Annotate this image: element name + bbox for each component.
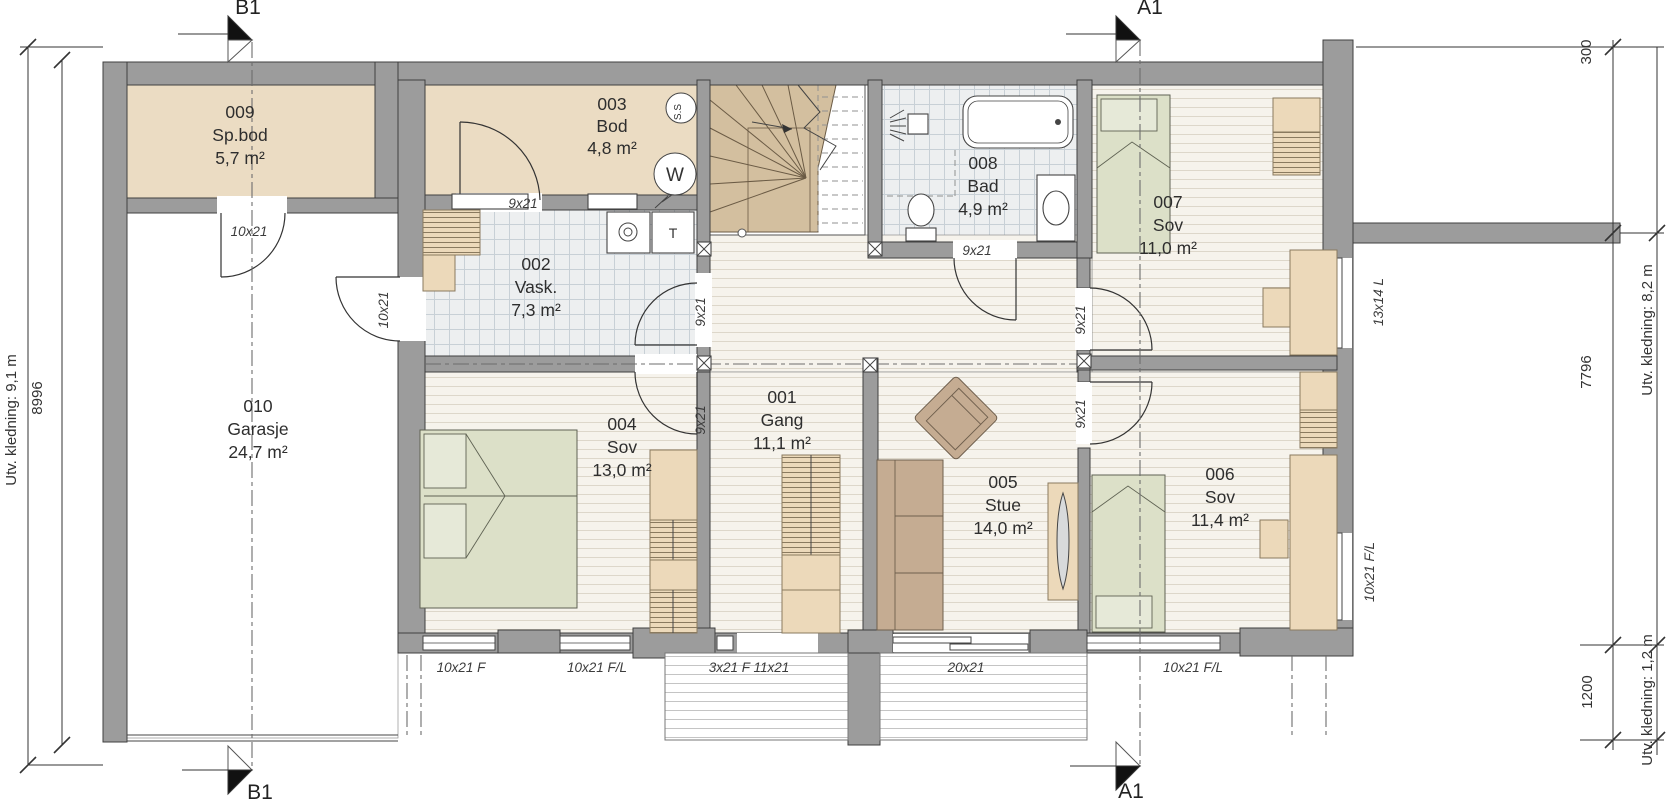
shower-mixer xyxy=(908,114,928,134)
dim-left-outer: Utv. kledning: 9,1 m xyxy=(3,354,20,485)
label-window-sov004-right: 10x21 F/L xyxy=(567,660,627,675)
toilet-tank xyxy=(906,228,936,241)
chair-sov-007 xyxy=(1263,288,1290,327)
staircase xyxy=(710,85,865,237)
room-name-007: Sov xyxy=(1153,215,1183,235)
shelf-sov-007 xyxy=(1273,98,1320,132)
chair-sov-006 xyxy=(1260,520,1288,558)
desk-sov-007 xyxy=(1290,250,1337,355)
wardrobe-sov-004 xyxy=(650,450,697,520)
room-name-010: Garasje xyxy=(227,419,288,439)
section-marker-a1-top: A1 xyxy=(1066,0,1163,62)
sofa-stue xyxy=(877,460,943,630)
label-window-sov006-bottom: 10x21 F/L xyxy=(1163,660,1223,675)
room-area-002: 7,3 m² xyxy=(511,300,561,320)
wall-central-lower xyxy=(697,345,710,633)
room-number-004: 004 xyxy=(607,414,636,434)
room-area-009: 5,7 m² xyxy=(215,148,265,168)
wall-007-006 xyxy=(1090,356,1337,370)
wall-stair-bad xyxy=(868,80,882,256)
label-door-garage-side: 10x21 xyxy=(376,292,391,329)
wall-006-left-b xyxy=(1078,448,1090,633)
label-door-sov-007: 9x21 xyxy=(1073,305,1088,334)
room-name-008: Bad xyxy=(967,176,998,196)
section-label-a1-bottom: A1 xyxy=(1118,780,1144,800)
label-door-sp-bod: 10x21 xyxy=(231,224,268,239)
room-number-002: 002 xyxy=(521,254,550,274)
label-window-sov004-left: 10x21 F xyxy=(437,660,487,675)
bathroom-sink xyxy=(1043,191,1069,225)
label-dryer: T xyxy=(669,225,678,241)
porch-pillar xyxy=(848,653,880,745)
dim-right-outer-bottom: Utv. kledning: 1,2 m xyxy=(1639,634,1656,765)
entrance-sidelight xyxy=(717,636,733,650)
shelf-sov-006 xyxy=(1300,372,1337,410)
wall-spbod-right xyxy=(375,62,398,213)
sliding-door-panel-2 xyxy=(950,644,1028,650)
room-area-008: 4,9 m² xyxy=(958,199,1008,219)
dim-right-outer: Utv. kledning: 8,2 m xyxy=(1639,264,1656,395)
label-water-heater: W xyxy=(666,165,684,186)
room-area-001: 11,1 m² xyxy=(753,433,811,453)
label-door-sov-004: 9x21 xyxy=(693,405,708,434)
wall-gang-stue xyxy=(863,358,878,633)
section-label-b1-top: B1 xyxy=(235,0,261,19)
floor-garasje xyxy=(127,213,398,738)
dim-right-bottom: 1200 xyxy=(1579,675,1596,708)
wall-006-left-a xyxy=(1078,370,1090,382)
room-area-010: 24,7 m² xyxy=(228,442,287,462)
dim-left-inner: 8996 xyxy=(29,381,46,414)
room-area-007: 11,0 m² xyxy=(1139,238,1197,258)
room-area-006: 11,4 m² xyxy=(1191,510,1249,530)
room-number-010: 010 xyxy=(243,396,272,416)
dimension-lines-right: 300 7796 Utv. kledning: 8,2 m 1200 Utv. … xyxy=(1356,39,1665,766)
room-area-004: 13,0 m² xyxy=(592,460,651,480)
label-sliding-door: 20x21 xyxy=(947,660,985,675)
label-window-sov006-right: 10x21 F/L xyxy=(1362,542,1377,602)
room-number-003: 003 xyxy=(597,94,626,114)
desk-sov-006 xyxy=(1290,455,1337,630)
room-number-009: 009 xyxy=(225,102,254,122)
dimension-lines-left: Utv. kledning: 9,1 m 8996 xyxy=(3,39,103,773)
room-name-001: Gang xyxy=(761,410,804,430)
section-label-a1-top: A1 xyxy=(1137,0,1163,19)
counter-bod-2 xyxy=(588,194,637,209)
label-door-vask: 9x21 xyxy=(693,297,708,326)
label-ss-unit: S.S xyxy=(673,104,684,120)
room-name-002: Vask. xyxy=(515,277,557,297)
label-window-sov-007: 13x14 L xyxy=(1371,278,1386,326)
label-door-sov-006: 9x21 xyxy=(1073,399,1088,428)
room-number-005: 005 xyxy=(988,472,1017,492)
sliding-door-panel-1 xyxy=(893,637,971,643)
label-entrance-door: 3x21 F 11x21 xyxy=(709,660,790,675)
room-name-005: Stue xyxy=(985,495,1021,515)
room-area-005: 14,0 m² xyxy=(973,518,1032,538)
floor-plan-drawing: B1 A1 B1 A1 Utv. kledning: 9,1 m 8996 xyxy=(0,0,1670,800)
room-number-006: 006 xyxy=(1205,464,1234,484)
room-name-006: Sov xyxy=(1205,487,1235,507)
room-number-007: 007 xyxy=(1153,192,1182,212)
section-marker-b1-bottom: B1 xyxy=(182,746,273,800)
room-name-003: Bod xyxy=(596,116,627,136)
wall-top xyxy=(103,62,1353,85)
wall-wing-left xyxy=(103,62,127,742)
wall-exterior-screen xyxy=(1353,223,1620,243)
room-number-008: 008 xyxy=(968,153,997,173)
room-area-003: 4,8 m² xyxy=(587,138,637,158)
floor-plan-page: B1 A1 B1 A1 Utv. kledning: 9,1 m 8996 xyxy=(0,0,1670,800)
dim-right-middle: 7796 xyxy=(1578,355,1595,388)
room-number-001: 001 xyxy=(767,387,796,407)
wall-hall-007-a xyxy=(1077,258,1090,288)
section-marker-b1-top: B1 xyxy=(178,0,261,62)
wall-bad-right xyxy=(1077,80,1092,258)
dim-right-top: 300 xyxy=(1578,39,1595,64)
section-label-b1-bottom: B1 xyxy=(247,781,273,800)
room-name-009: Sp.bod xyxy=(212,125,267,145)
room-name-004: Sov xyxy=(607,437,637,457)
label-door-bod: 9x21 xyxy=(508,196,537,211)
toilet-bowl xyxy=(908,194,934,226)
washing-machine xyxy=(607,212,650,253)
label-door-bad: 9x21 xyxy=(962,243,991,258)
bench-vask xyxy=(423,210,480,255)
section-marker-a1-bottom: A1 xyxy=(1070,742,1144,800)
